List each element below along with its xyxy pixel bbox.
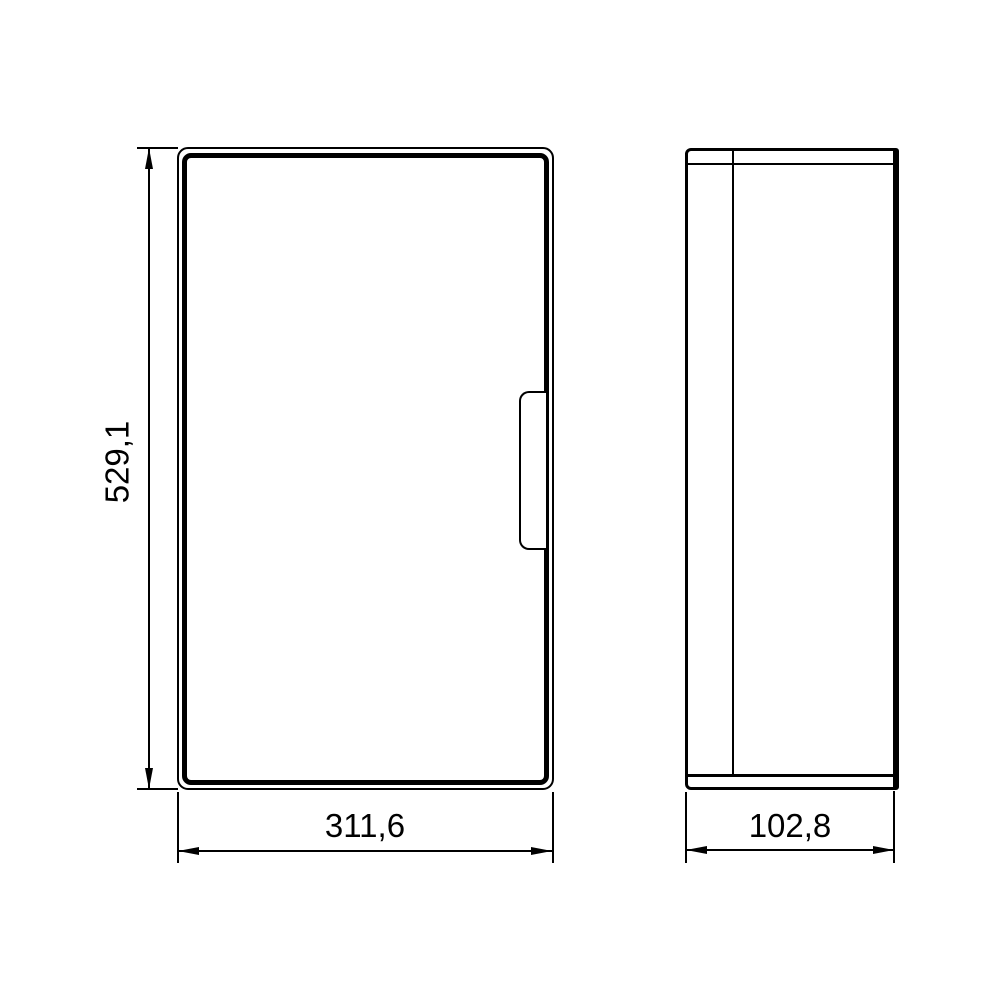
depth-dimension-line xyxy=(686,849,894,851)
side-view-door-seam-line xyxy=(732,151,735,777)
depth-dimension-label: 102,8 xyxy=(749,809,832,842)
dimension-arrow-left-icon xyxy=(686,846,707,854)
side-view-top-flange-line xyxy=(688,163,893,166)
width-dimension-label: 311,6 xyxy=(325,809,405,842)
front-view-door-panel xyxy=(182,153,549,785)
dimension-arrow-down-icon xyxy=(145,768,153,789)
height-dimension-line xyxy=(148,148,150,789)
height-extension-line-bottom xyxy=(137,788,178,790)
technical-drawing-canvas: 529,1 311,6 102,8 xyxy=(0,0,1000,1000)
height-dimension-label: 529,1 xyxy=(101,421,134,504)
dimension-arrow-right-icon xyxy=(531,847,552,855)
door-handle xyxy=(519,391,546,550)
width-dimension-line xyxy=(178,850,552,852)
dimension-arrow-left-icon xyxy=(178,847,199,855)
dimension-arrow-up-icon xyxy=(145,148,153,169)
side-view-bottom-flange-line xyxy=(688,774,893,777)
side-view-outline xyxy=(685,148,899,790)
dimension-arrow-right-icon xyxy=(873,846,894,854)
height-extension-line-top xyxy=(137,147,178,149)
